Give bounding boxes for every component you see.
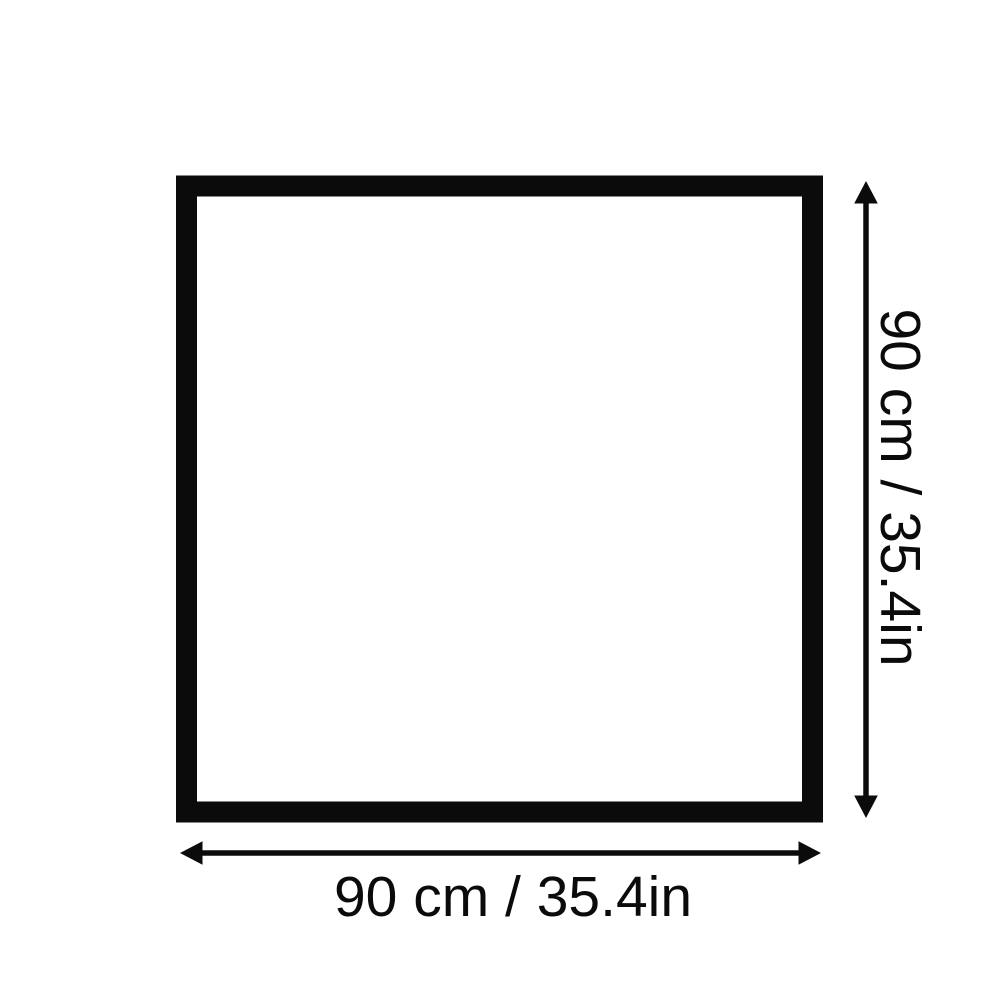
svg-text:90 cm / 35.4in: 90 cm / 35.4in (334, 865, 692, 929)
svg-text:90 cm / 35.4in: 90 cm / 35.4in (868, 308, 932, 666)
